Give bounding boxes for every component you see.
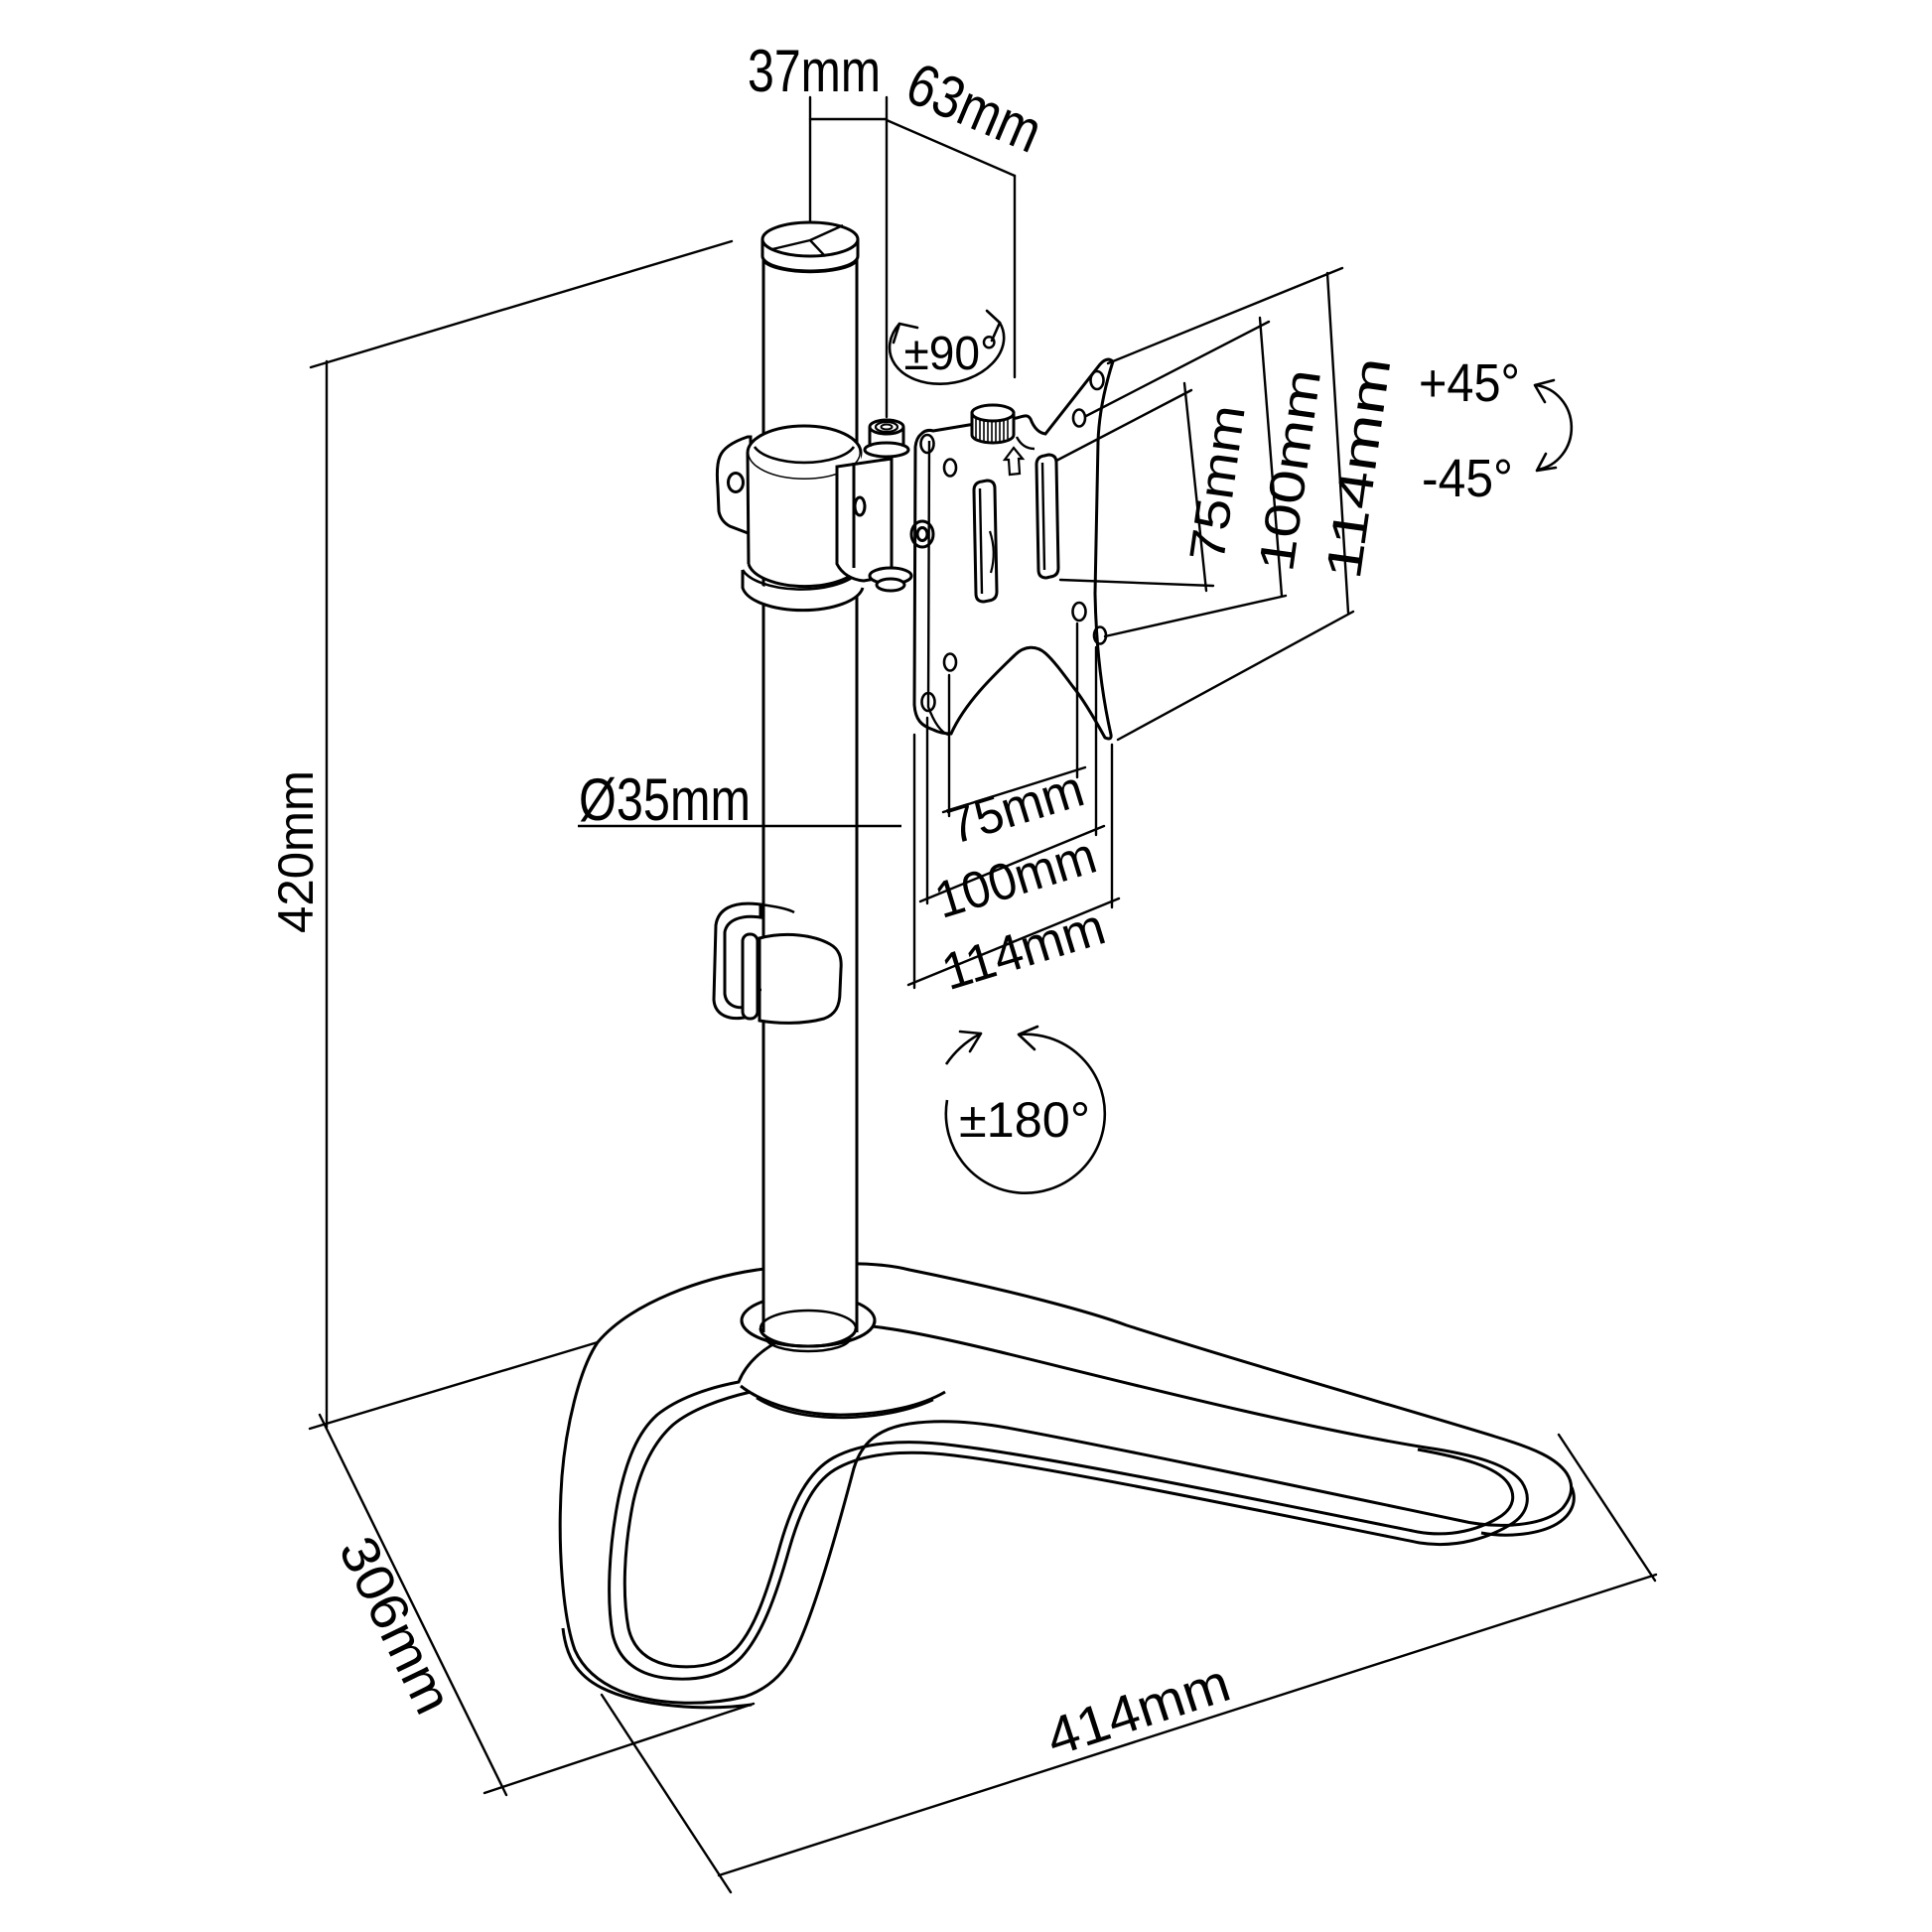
svg-text:±180°: ±180° — [959, 1092, 1090, 1148]
svg-text:-45°: -45° — [1422, 449, 1513, 508]
svg-text:+45°: +45° — [1419, 353, 1520, 413]
svg-text:420mm: 420mm — [268, 770, 324, 933]
svg-text:37mm: 37mm — [748, 38, 881, 104]
svg-text:±90°: ±90° — [904, 328, 999, 380]
svg-text:Ø35mm: Ø35mm — [579, 766, 751, 833]
